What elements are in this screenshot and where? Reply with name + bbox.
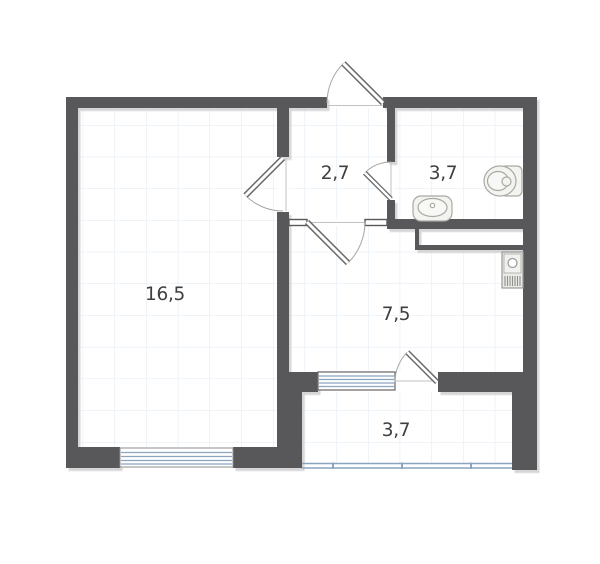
wall-segment: [387, 200, 395, 219]
door-entrance: [327, 63, 383, 105]
floor-plan: 16,5 2,7 3,7 7,5 3,7: [0, 0, 600, 564]
duct-niche: [417, 228, 525, 247]
living-room-floor: [78, 108, 277, 447]
window-living-room: [120, 448, 233, 467]
wall-segment: [512, 392, 537, 470]
room-label-kitchen: 7,5: [382, 304, 411, 325]
room-label-living: 16,5: [145, 284, 185, 305]
room-label-hallway: 2,7: [321, 163, 350, 184]
wall-segment: [66, 447, 120, 468]
wall-segment: [383, 97, 537, 108]
wall-segment: [66, 97, 327, 108]
toilet-icon: [484, 166, 522, 196]
wall-segment: [387, 219, 537, 229]
stove-icon: [502, 252, 523, 288]
door-jamb: [365, 220, 387, 226]
balcony-glazing: [302, 463, 512, 470]
wall-segment: [277, 372, 318, 392]
wall-segment: [66, 97, 78, 468]
sink-icon: [413, 196, 452, 221]
window-kitchen-balcony: [318, 372, 395, 390]
room-label-bathroom: 3,7: [429, 163, 458, 184]
wall-segment: [387, 108, 395, 162]
wall-segment: [277, 108, 289, 157]
floor-plan-canvas: 16,5 2,7 3,7 7,5 3,7: [0, 0, 600, 564]
wall-segment: [415, 245, 537, 250]
door-jamb: [289, 220, 307, 226]
room-label-balcony: 3,7: [382, 420, 411, 441]
wall-segment: [438, 372, 537, 392]
